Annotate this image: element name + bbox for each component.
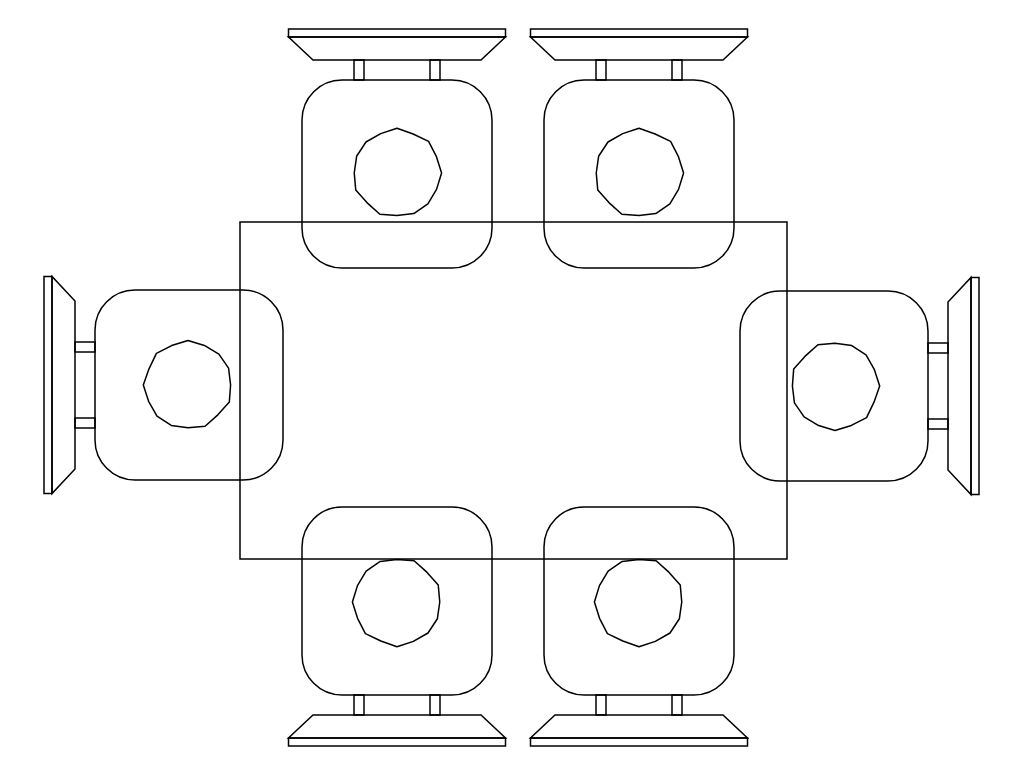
chair-rail (430, 60, 440, 80)
chair-seat (740, 291, 928, 481)
chair-backrest-bar (531, 738, 748, 746)
chair-cushion (143, 340, 230, 427)
chair-seat (544, 507, 734, 695)
chair-seat (544, 80, 734, 268)
chair-cushion (594, 559, 681, 646)
chair-cushion (354, 128, 441, 215)
chair-cushion (352, 559, 439, 646)
chair-top-left (289, 29, 506, 268)
chair-rail (672, 695, 682, 715)
chair-seat (95, 290, 283, 480)
chair-rail (596, 60, 606, 80)
chair-rail (672, 60, 682, 80)
chair-backrest-bar (531, 29, 748, 37)
chair-rail (928, 419, 948, 429)
floor-plan-svg (0, 0, 1027, 776)
chair-backrest-bar (44, 277, 52, 494)
chair-backrest-bar (289, 29, 506, 37)
chair-rail (928, 343, 948, 353)
chair-seat (302, 80, 492, 268)
chair-backrest-bar (971, 278, 979, 495)
floor-plan-canvas (0, 0, 1027, 776)
chair-rail (596, 695, 606, 715)
chair-backrest-pad (289, 715, 506, 738)
chair-bottom-right (531, 507, 748, 746)
chair-right (740, 278, 979, 495)
chair-backrest-bar (289, 738, 506, 746)
chair-backrest-pad (948, 278, 971, 495)
chair-bottom-left (289, 507, 506, 746)
chair-rail (354, 695, 364, 715)
chair-seat (302, 507, 492, 695)
chair-rail (75, 342, 95, 352)
chair-backrest-pad (531, 37, 748, 60)
chair-cushion (792, 343, 879, 430)
chair-top-right (531, 29, 748, 268)
chair-cushion (596, 128, 683, 215)
chair-backrest-pad (52, 277, 75, 494)
chair-backrest-pad (531, 715, 748, 738)
chair-left (44, 277, 283, 494)
chair-rail (354, 60, 364, 80)
chair-backrest-pad (289, 37, 506, 60)
chair-rail (75, 418, 95, 428)
chair-rail (430, 695, 440, 715)
